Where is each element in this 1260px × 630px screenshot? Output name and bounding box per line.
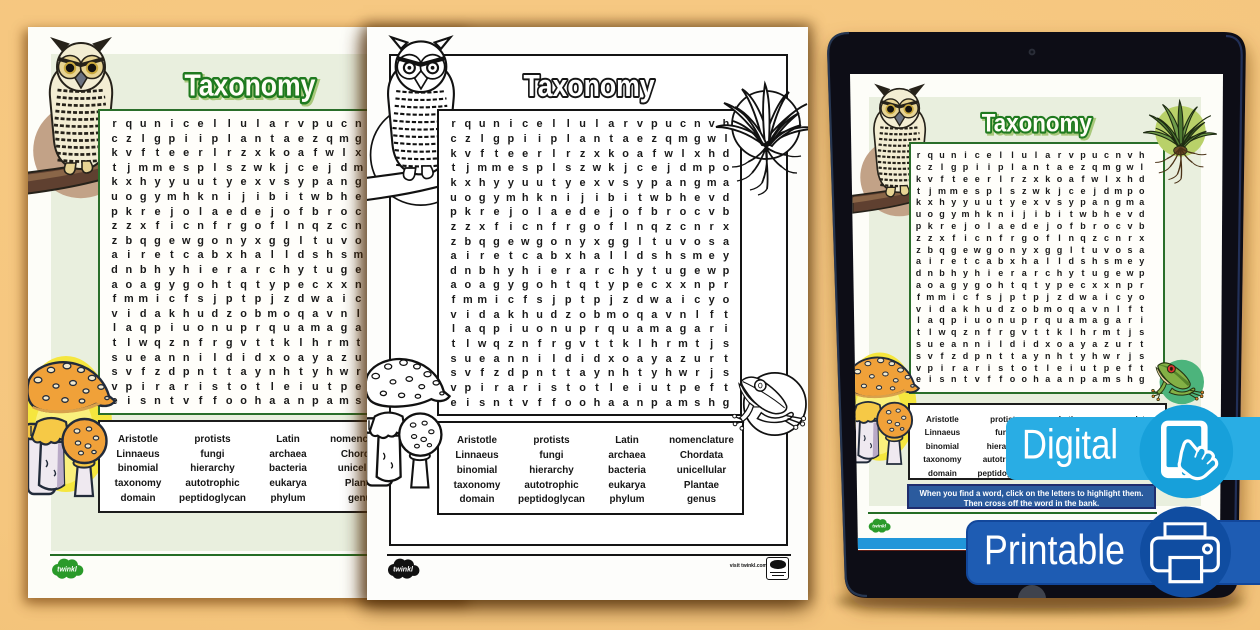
svg-text:twinkl: twinkl	[872, 524, 886, 530]
svg-text:Printable: Printable	[984, 526, 1125, 573]
svg-text:Taxonomy: Taxonomy	[524, 68, 656, 103]
svg-text:twinkl: twinkl	[57, 566, 78, 573]
svg-text:Digital: Digital	[1022, 420, 1118, 467]
svg-text:Taxonomy: Taxonomy	[981, 109, 1091, 137]
svg-text:twinkl: twinkl	[393, 567, 414, 574]
svg-text:Taxonomy: Taxonomy	[185, 68, 316, 103]
